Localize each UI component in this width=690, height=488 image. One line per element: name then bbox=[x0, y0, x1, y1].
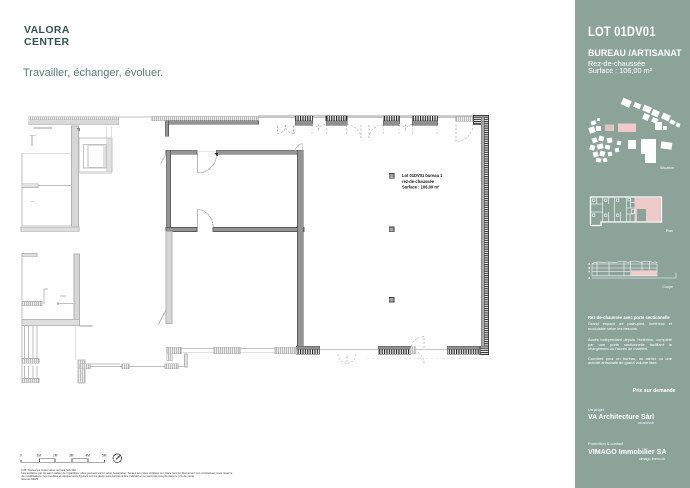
svg-text:rez-de-chaussée: rez-de-chaussée bbox=[402, 179, 435, 184]
svg-text:2M: 2M bbox=[53, 454, 58, 458]
svg-text:Surface : 106,00 m²: Surface : 106,00 m² bbox=[402, 184, 440, 189]
svg-text:3M: 3M bbox=[69, 454, 74, 458]
svg-text:Lot 01DV01 bureau 1: Lot 01DV01 bureau 1 bbox=[402, 173, 443, 178]
svg-text:4M: 4M bbox=[86, 454, 91, 458]
svg-text:de modifications; les meubles: de modifications; les meubles et équipem… bbox=[22, 474, 196, 478]
svg-text:1M: 1M bbox=[37, 454, 42, 458]
svg-text:5M: 5M bbox=[102, 454, 107, 458]
svg-text:0: 0 bbox=[20, 454, 22, 458]
svg-text:Etat au 09/25: Etat au 09/25 bbox=[22, 477, 39, 481]
